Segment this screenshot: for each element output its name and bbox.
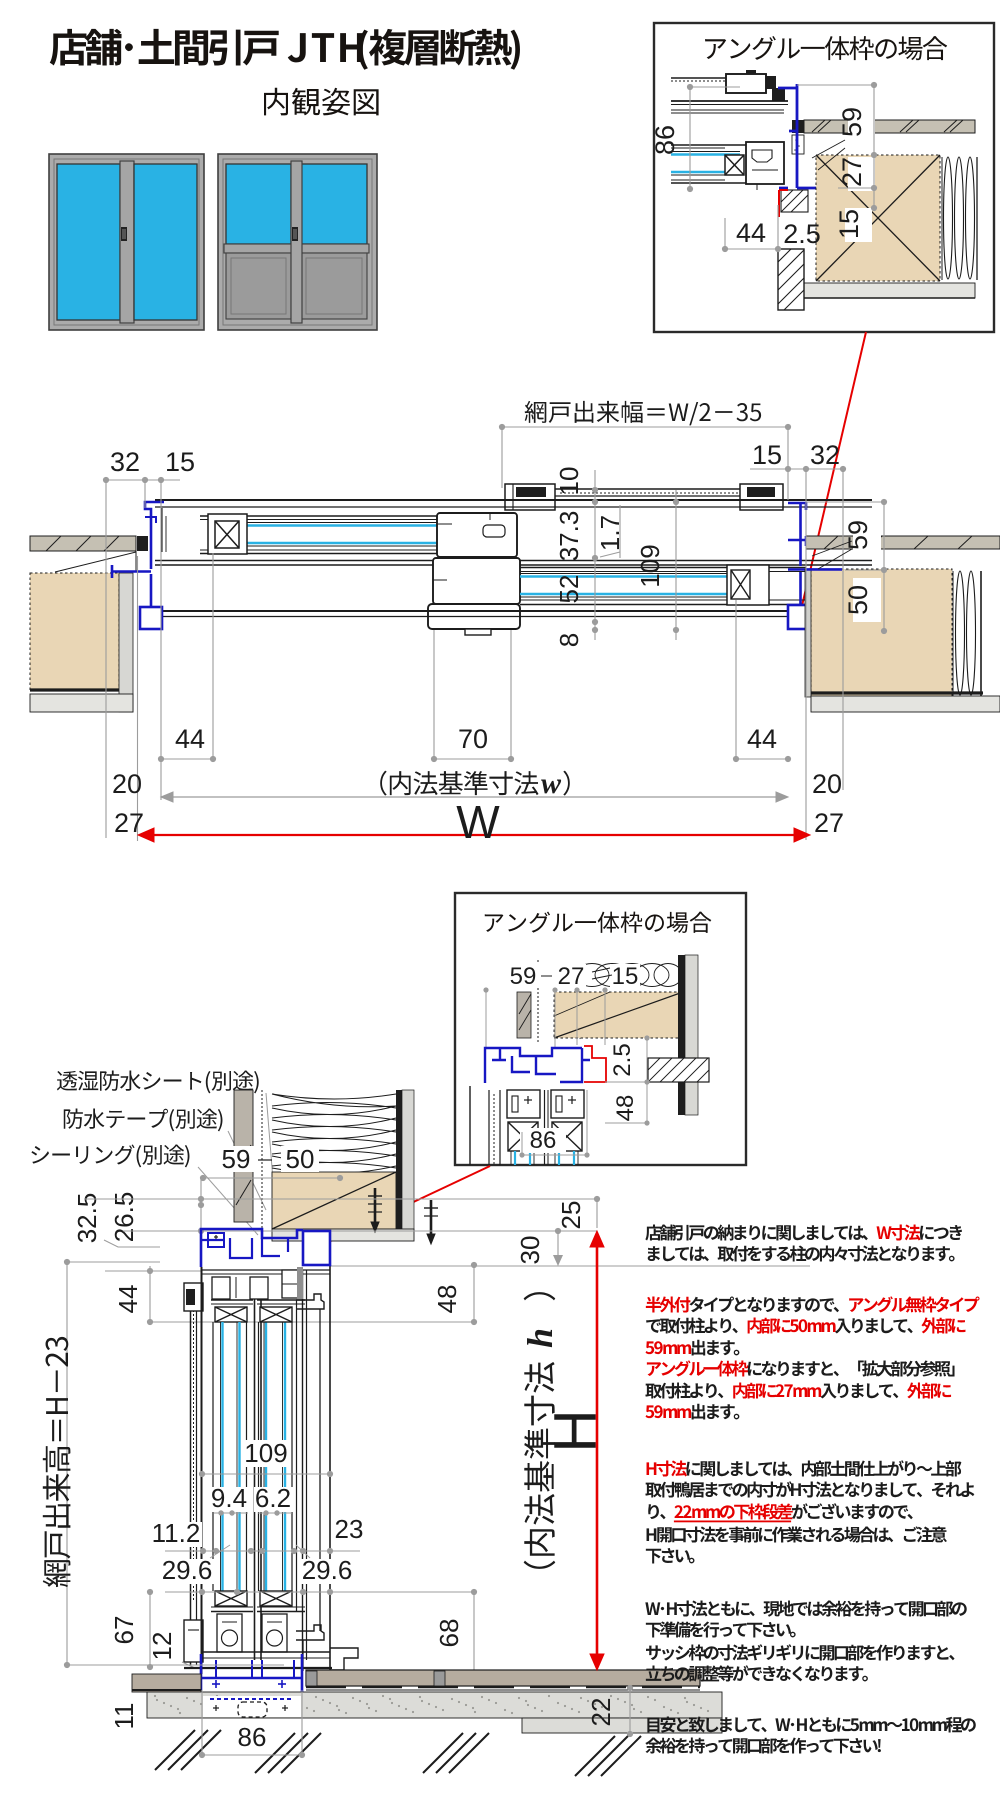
svg-text:10: 10 (554, 467, 584, 496)
svg-text:w: w (541, 767, 562, 800)
svg-text:2.5: 2.5 (609, 1043, 636, 1076)
svg-text:11.2: 11.2 (152, 1518, 201, 1548)
svg-text:86: 86 (650, 125, 680, 155)
svg-text:23: 23 (335, 1514, 364, 1544)
svg-text:86: 86 (238, 1722, 267, 1752)
svg-text:h: h (520, 1328, 560, 1348)
svg-text:59: 59 (222, 1144, 251, 1174)
svg-text:2.5: 2.5 (783, 219, 821, 249)
svg-text:52: 52 (554, 575, 584, 604)
svg-text:15: 15 (612, 963, 639, 990)
svg-text:15: 15 (752, 440, 782, 470)
svg-text:44: 44 (113, 1285, 143, 1314)
svg-text:32.5: 32.5 (72, 1193, 102, 1244)
svg-text:67: 67 (109, 1616, 139, 1645)
svg-text:27: 27 (114, 808, 144, 838)
svg-text:15: 15 (165, 447, 195, 477)
svg-text:27: 27 (558, 963, 585, 990)
svg-text:6.2: 6.2 (255, 1483, 291, 1513)
svg-text:H: H (542, 1409, 609, 1452)
svg-text:8: 8 (554, 633, 584, 647)
svg-text:48: 48 (432, 1285, 462, 1314)
svg-text:32: 32 (110, 447, 140, 477)
svg-text:12: 12 (147, 1632, 177, 1661)
svg-text:25: 25 (556, 1201, 586, 1230)
svg-text:109: 109 (244, 1438, 287, 1468)
svg-text:30: 30 (515, 1236, 545, 1265)
svg-text:1.7: 1.7 (595, 515, 625, 551)
svg-text:68: 68 (434, 1619, 464, 1648)
svg-text:86: 86 (530, 1127, 557, 1154)
svg-text:32: 32 (810, 440, 840, 470)
svg-text:70: 70 (458, 724, 488, 754)
svg-text:37.3: 37.3 (554, 511, 584, 562)
svg-text:29.6: 29.6 (302, 1555, 353, 1585)
svg-text:27: 27 (814, 808, 844, 838)
svg-text:22: 22 (586, 1698, 616, 1727)
svg-text:15: 15 (834, 209, 864, 239)
svg-text:59: 59 (837, 107, 867, 137)
svg-text:44: 44 (747, 724, 777, 754)
svg-text:50: 50 (286, 1144, 315, 1174)
svg-text:11: 11 (109, 1703, 139, 1730)
svg-text:W: W (456, 796, 500, 848)
svg-text:44: 44 (175, 724, 205, 754)
svg-text:20: 20 (812, 769, 842, 799)
svg-text:59: 59 (510, 963, 537, 990)
svg-text:9.4: 9.4 (211, 1483, 247, 1513)
svg-text:109: 109 (635, 544, 665, 587)
svg-text:44: 44 (736, 218, 766, 248)
svg-text:20: 20 (112, 769, 142, 799)
svg-text:29.6: 29.6 (162, 1555, 213, 1585)
svg-text:27: 27 (837, 157, 867, 187)
svg-text:48: 48 (612, 1095, 639, 1122)
svg-text:50: 50 (843, 585, 873, 615)
svg-text:59: 59 (843, 520, 873, 550)
